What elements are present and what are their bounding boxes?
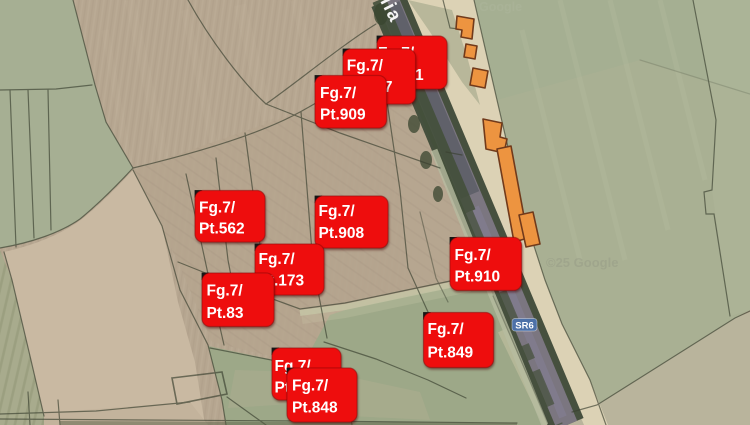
svg-text:Pt.908: Pt.908 (319, 225, 365, 242)
svg-text:Fg.7/: Fg.7/ (428, 321, 465, 338)
svg-text:Pt.848: Pt.848 (292, 399, 338, 416)
svg-text:Fg.7/: Fg.7/ (320, 85, 357, 102)
svg-text:Pt.849: Pt.849 (428, 345, 474, 362)
svg-text:SR6: SR6 (515, 321, 533, 332)
svg-text:Fg.7/: Fg.7/ (319, 203, 356, 220)
svg-text:Fg.7/: Fg.7/ (347, 58, 384, 75)
svg-text:©25 Google: ©25 Google (546, 255, 618, 270)
svg-text:Google: Google (479, 0, 522, 14)
svg-text:Pt.910: Pt.910 (455, 269, 501, 286)
svg-text:Fg.7/: Fg.7/ (455, 247, 492, 264)
svg-text:Fg.7/: Fg.7/ (207, 283, 244, 300)
svg-text:Pt.909: Pt.909 (320, 107, 366, 124)
svg-text:Pt.83: Pt.83 (207, 305, 244, 322)
svg-text:Fg.7/: Fg.7/ (199, 199, 236, 216)
svg-text:Pt.562: Pt.562 (199, 221, 245, 238)
svg-text:Fg.7/: Fg.7/ (292, 378, 329, 395)
svg-text:Fg.7/: Fg.7/ (259, 251, 296, 268)
